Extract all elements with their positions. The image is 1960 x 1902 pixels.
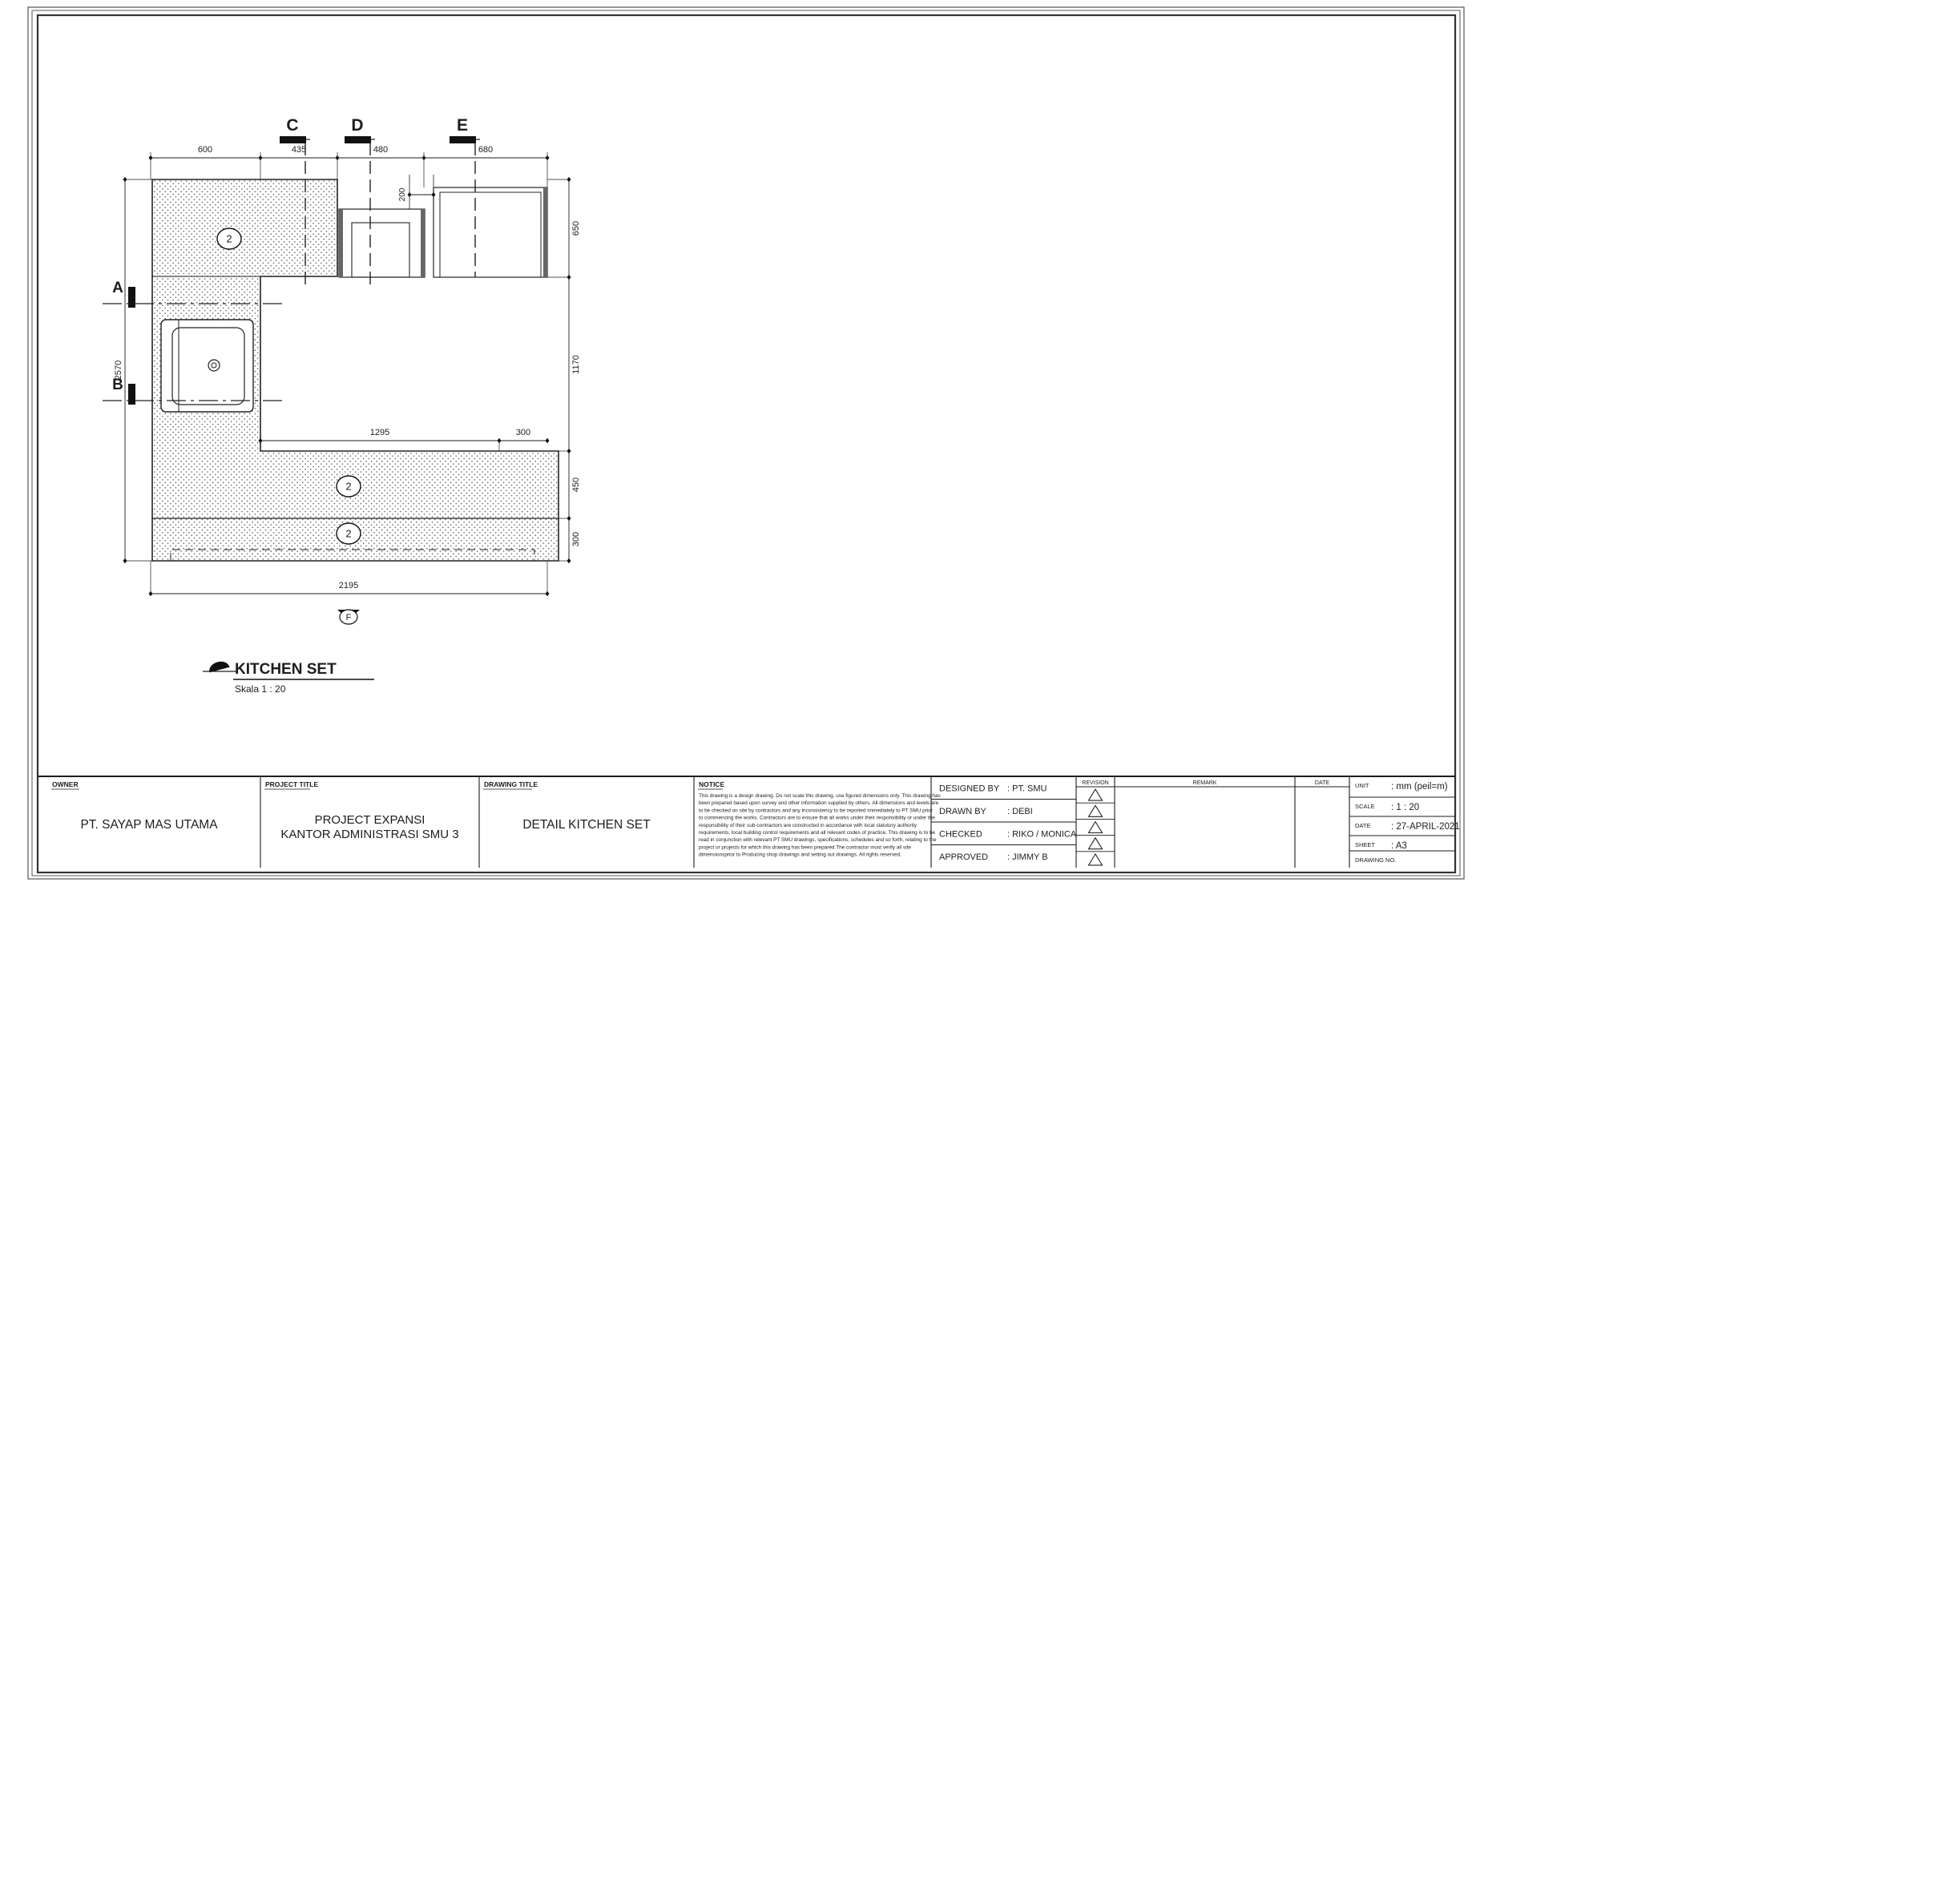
svg-text:435: 435 — [292, 145, 306, 155]
svg-text:D: D — [351, 116, 363, 135]
svg-text:dimensionsprior to Producing s: dimensionsprior to Producing shop drawin… — [699, 852, 901, 858]
svg-text:PROJECT TITLE: PROJECT TITLE — [265, 780, 318, 788]
svg-text:300: 300 — [516, 428, 530, 437]
svg-text:1295: 1295 — [370, 428, 389, 437]
svg-text:DRAWN BY: DRAWN BY — [939, 807, 987, 816]
svg-text:F: F — [346, 613, 352, 623]
svg-text:NOTICE: NOTICE — [699, 780, 724, 788]
svg-text:to be checked on site by contr: to be checked on site by contractors and… — [699, 808, 934, 813]
svg-text:600: 600 — [198, 145, 212, 155]
svg-text:A: A — [112, 280, 123, 296]
svg-text:200: 200 — [398, 187, 407, 201]
svg-text:REMARK: REMARK — [1193, 780, 1217, 786]
svg-text:This drawing is a design drawi: This drawing is a design drawing. Do not… — [699, 793, 941, 799]
svg-text:2: 2 — [226, 233, 232, 245]
svg-text:680: 680 — [478, 145, 493, 155]
svg-text:DRAWING TITLE: DRAWING TITLE — [484, 780, 538, 788]
svg-text:2570: 2570 — [114, 361, 123, 380]
svg-text:been prepared based upon surve: been prepared based upon survey and othe… — [699, 800, 939, 806]
svg-text:PROJECT EXPANSI: PROJECT EXPANSI — [315, 813, 425, 827]
svg-text:OWNER: OWNER — [52, 780, 79, 788]
svg-text:2195: 2195 — [339, 581, 358, 590]
svg-text:responsibility of their sub-co: responsibility of their sub-contractors … — [699, 823, 917, 828]
svg-text:: PT. SMU: : PT. SMU — [1007, 784, 1047, 793]
svg-text:C: C — [286, 116, 298, 135]
svg-text:: 27-APRIL-2021: : 27-APRIL-2021 — [1391, 822, 1460, 832]
svg-text:: A3: : A3 — [1391, 841, 1407, 851]
svg-text:DATE: DATE — [1315, 780, 1329, 786]
svg-text:CHECKED: CHECKED — [939, 829, 982, 839]
svg-text:UNIT: UNIT — [1355, 782, 1369, 789]
svg-text:SCALE: SCALE — [1355, 803, 1375, 810]
svg-text:: 1 : 20: : 1 : 20 — [1391, 803, 1419, 812]
svg-text:Skala 1 : 20: Skala 1 : 20 — [235, 683, 286, 695]
svg-text:: mm (peil=m): : mm (peil=m) — [1391, 782, 1448, 792]
svg-text:to commencing the works. Contr: to commencing the works. Contractors are… — [699, 816, 935, 821]
svg-text:: DEBI: : DEBI — [1007, 807, 1033, 816]
svg-text:: RIKO / MONICA: : RIKO / MONICA — [1007, 829, 1077, 839]
svg-text:KANTOR ADMINISTRASI SMU 3: KANTOR ADMINISTRASI SMU 3 — [280, 828, 458, 841]
svg-text:E: E — [457, 116, 468, 135]
svg-text:2: 2 — [345, 528, 351, 540]
svg-text:DATE: DATE — [1355, 822, 1370, 829]
svg-text:DRAWING NO.: DRAWING NO. — [1355, 856, 1396, 864]
svg-text:KITCHEN SET: KITCHEN SET — [235, 661, 337, 678]
svg-text:650: 650 — [571, 221, 581, 236]
svg-text:300: 300 — [571, 532, 581, 546]
svg-text:PT. SAYAP MAS UTAMA: PT. SAYAP MAS UTAMA — [80, 818, 218, 832]
svg-text:450: 450 — [571, 478, 581, 492]
svg-text:REVISION: REVISION — [1082, 780, 1108, 786]
svg-text:project or projects for which: project or projects for which this drawi… — [699, 844, 911, 850]
svg-text:1170: 1170 — [571, 355, 581, 374]
svg-text:2: 2 — [345, 481, 351, 493]
svg-text:SHEET: SHEET — [1355, 841, 1375, 848]
svg-text:: JIMMY B: : JIMMY B — [1007, 852, 1048, 862]
svg-text:requirements, local building c: requirements, local building control req… — [699, 830, 936, 836]
svg-text:APPROVED: APPROVED — [939, 852, 988, 862]
svg-text:read in conjunction with relev: read in conjunction with relevant PT SMU… — [699, 837, 937, 843]
svg-text:480: 480 — [373, 145, 388, 155]
svg-text:DESIGNED BY: DESIGNED BY — [939, 784, 1000, 793]
svg-text:DETAIL KITCHEN SET: DETAIL KITCHEN SET — [522, 818, 651, 832]
